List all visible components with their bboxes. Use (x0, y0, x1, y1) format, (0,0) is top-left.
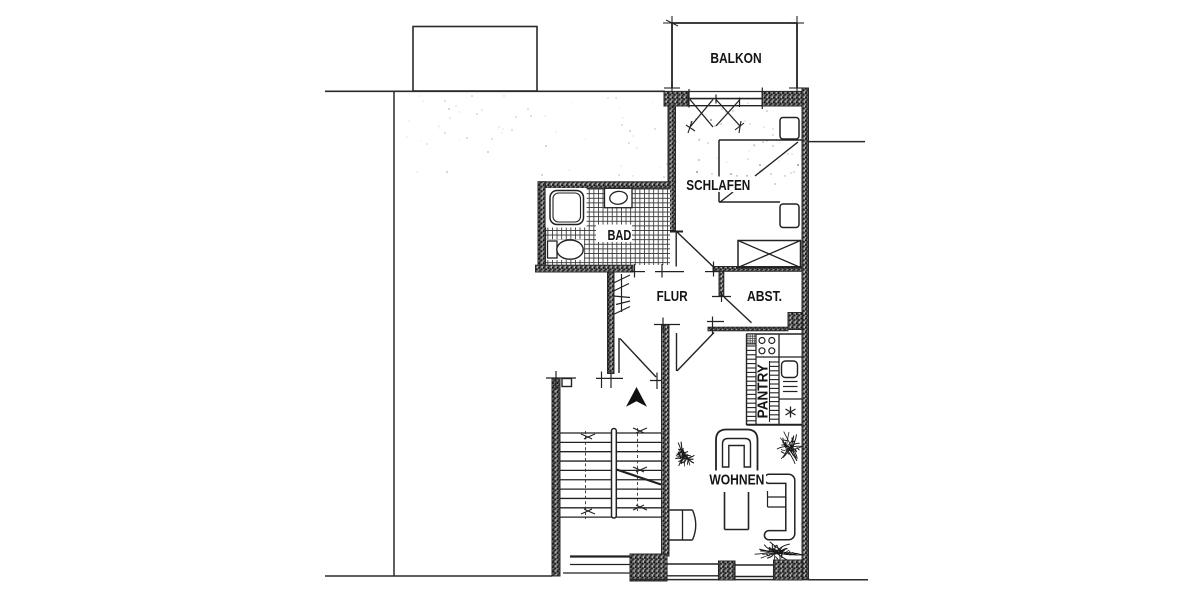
svg-text:PANTRY: PANTRY (755, 364, 772, 418)
svg-text:BALKON: BALKON (710, 50, 761, 67)
svg-text:ABST.: ABST. (747, 288, 782, 305)
svg-text:SCHLAFEN: SCHLAFEN (686, 177, 750, 194)
svg-text:FLUR: FLUR (657, 288, 688, 305)
svg-text:WOHNEN: WOHNEN (709, 472, 764, 489)
svg-text:BAD: BAD (608, 227, 632, 244)
